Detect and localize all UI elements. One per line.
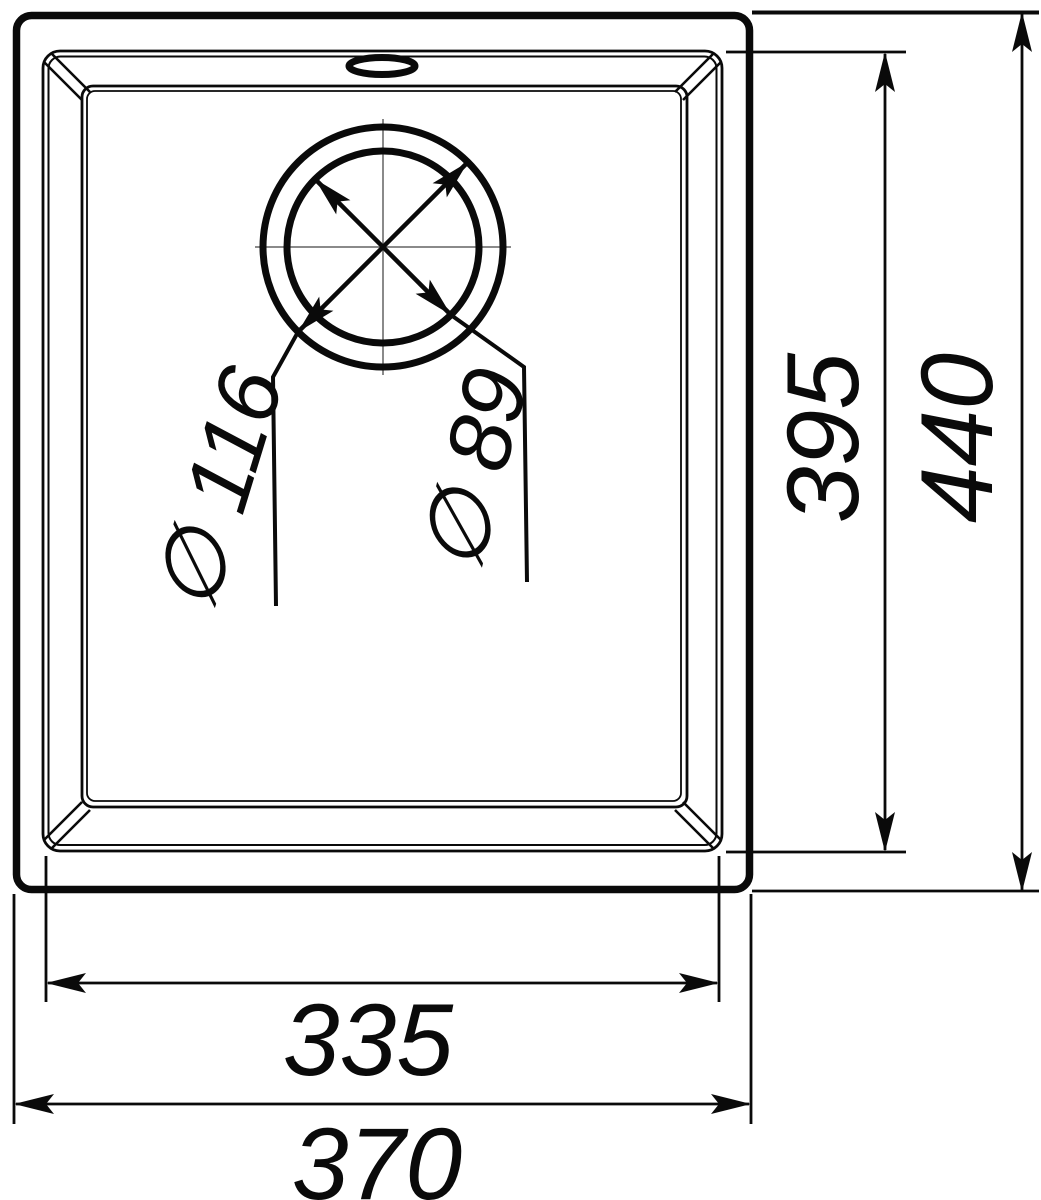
sink-technical-drawing: ∅ 116 ∅ 89 395 440 335 370 xyxy=(0,0,1041,1200)
drain-outer-diameter-label: ∅ 116 xyxy=(135,356,303,622)
dim-label-370: 370 xyxy=(292,1107,462,1200)
extension-lines xyxy=(46,856,719,1002)
drain: ∅ 116 ∅ 89 xyxy=(135,119,548,622)
dim-label-335: 335 xyxy=(283,983,453,1097)
dim-label-395: 395 xyxy=(766,353,880,523)
bowl-rim-inner-edge xyxy=(82,86,687,807)
rim-inner-line xyxy=(82,86,687,807)
overflow-hole xyxy=(349,58,415,75)
drawing-canvas: ∅ 116 ∅ 89 395 440 335 370 xyxy=(0,0,1041,1200)
dim-label-440: 440 xyxy=(900,353,1014,523)
